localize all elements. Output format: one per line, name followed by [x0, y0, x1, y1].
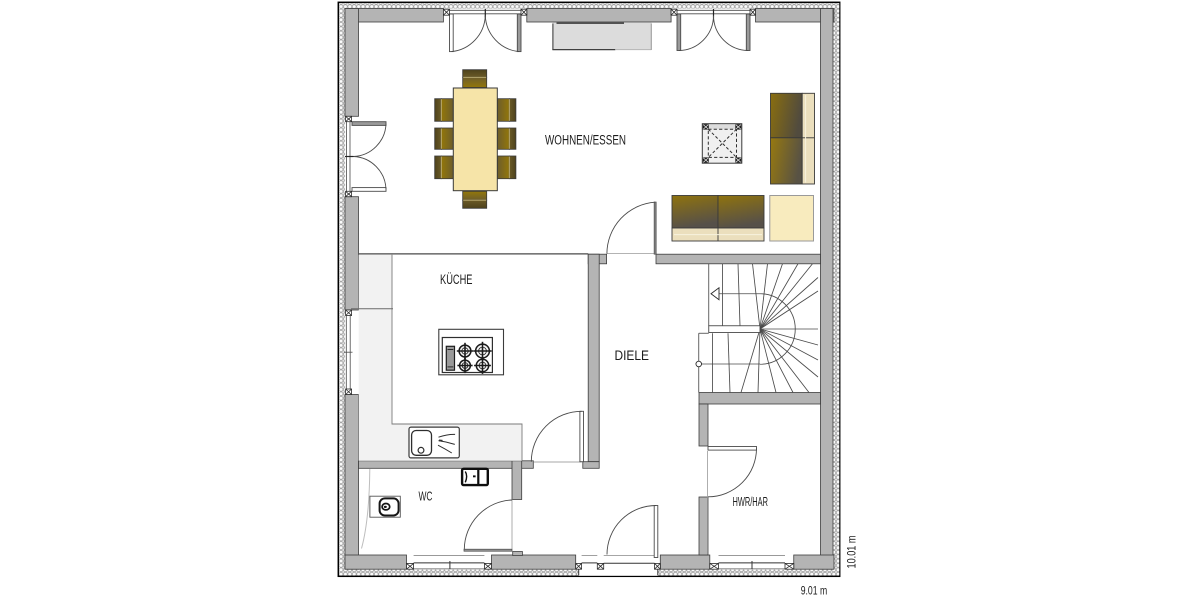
svg-text:WOHNEN/ESSEN: WOHNEN/ESSEN	[545, 133, 626, 148]
svg-text:HWR/HAR: HWR/HAR	[733, 495, 769, 509]
svg-text:KÜCHE: KÜCHE	[440, 272, 473, 287]
svg-text:10.01 m: 10.01 m	[847, 536, 859, 569]
svg-text:DIELE: DIELE	[615, 348, 650, 363]
svg-text:9.01 m: 9.01 m	[801, 585, 828, 597]
svg-text:WC: WC	[419, 488, 433, 503]
